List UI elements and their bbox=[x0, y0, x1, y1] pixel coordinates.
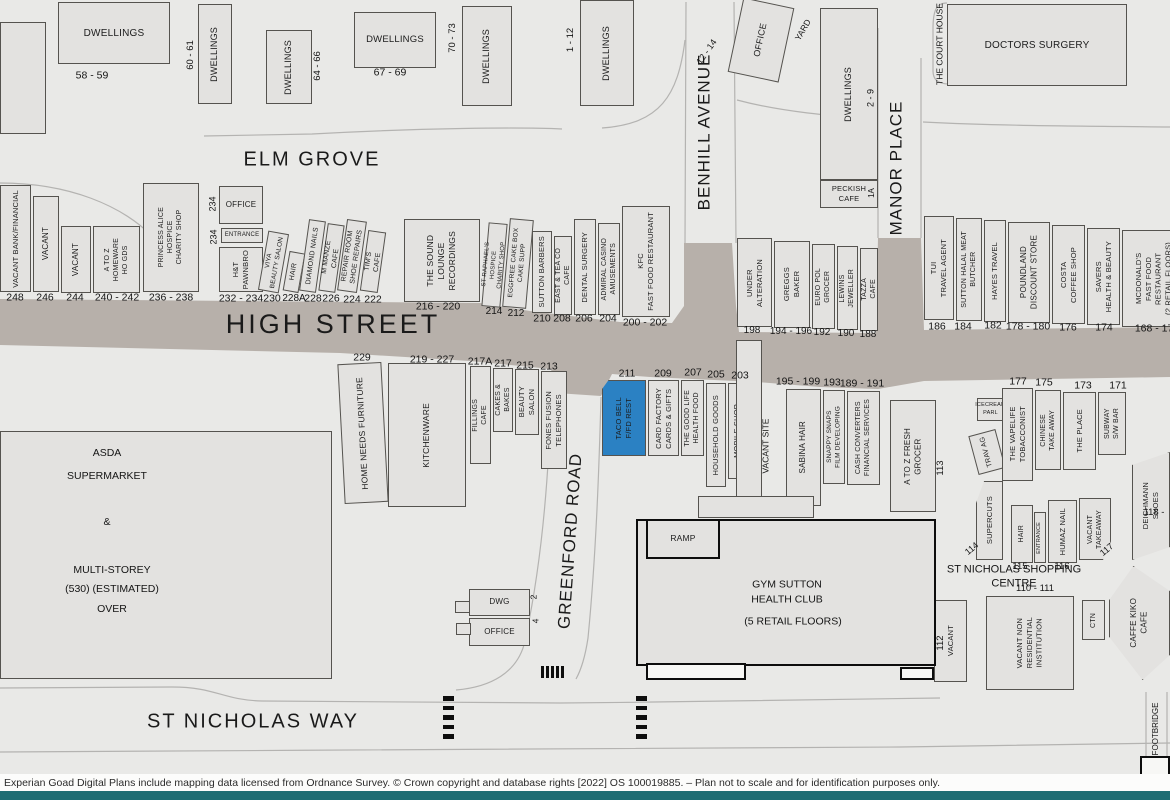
building-tui-186-number: 186 bbox=[928, 320, 946, 333]
building-st-raphaels-214-number: 214 bbox=[486, 306, 503, 319]
building-poundland-178-180-label: POUNDLAND DISCOUNT STORE bbox=[1019, 235, 1040, 309]
building-chinese-takeaway-175[interactable]: CHINESE TAKE AWAY bbox=[1035, 390, 1061, 470]
building-dwg-office[interactable]: OFFICE bbox=[469, 618, 530, 646]
building-tui-186-label: TUI TRAVEL AGENT bbox=[929, 239, 949, 297]
building-hair-228a-label: HAIR bbox=[288, 263, 300, 282]
building-home-needs-229[interactable]: HOME NEEDS FURNITURE bbox=[337, 362, 388, 504]
building-hayes-travel-182-number: 182 bbox=[984, 319, 1002, 332]
building-a-to-z-homeware-240-242-number: 240 - 242 bbox=[95, 291, 139, 304]
building-dwellings-64-66-label: DWELLINGS bbox=[283, 40, 295, 95]
building-h-and-t-pawnbroker-232-234-number: 232 - 234 bbox=[219, 292, 263, 305]
building-dwg-office-number: 4 bbox=[531, 619, 542, 624]
label-asda-top: ASDA SUPERMARKET & bbox=[67, 442, 147, 534]
building-sabina-hair-195-199-number: 195 - 199 bbox=[776, 375, 820, 388]
building-kfc-200-202-label: KFC FAST FOOD RESTAURANT bbox=[636, 212, 656, 311]
label-footbridge: FOOTBRIDGE bbox=[1151, 703, 1161, 756]
building-greggs-194-196-number: 194 - 196 bbox=[770, 326, 812, 339]
building-princess-alice-hospice-236-238-label: PRINCESS ALICE HOSPICE CHARITY SHOP bbox=[157, 207, 184, 267]
building-lewins-190[interactable]: LEWINS JEWELLER bbox=[837, 246, 858, 330]
building-fones-fusion-213[interactable]: FONES FUSION TELEPHONES bbox=[541, 371, 567, 469]
building-ramp-label: RAMP bbox=[670, 533, 695, 544]
label-st-nicholas-shopping-centre: ST NICHOLAS SHOPPING CENTRE bbox=[936, 563, 1092, 591]
building-home-needs-229-label: HOME NEEDS FURNITURE bbox=[355, 376, 372, 489]
building-kitchenware-219-227[interactable]: KITCHENWARE bbox=[388, 363, 466, 507]
building-vacant-246-label: VACANT bbox=[41, 227, 51, 260]
building-dwellings-60-61[interactable]: DWELLINGS bbox=[198, 4, 232, 104]
building-fillings-cafe-217a-number: 217A bbox=[468, 355, 493, 368]
building-card-factory-209-number: 209 bbox=[654, 367, 672, 380]
building-hair-115-label: HAIR bbox=[1017, 525, 1026, 543]
pedestrian-crossing-greenford bbox=[541, 666, 544, 678]
building-chinese-takeaway-175-label: CHINESE TAKE AWAY bbox=[1039, 410, 1057, 451]
building-asda-supermarket[interactable] bbox=[0, 431, 332, 679]
building-cash-converters-189-191-label: CASH CONVERTERS FINANCIAL SERVICES bbox=[854, 399, 872, 476]
building-kfc-200-202-number: 200 - 202 bbox=[623, 316, 667, 329]
building-admiral-casino-204-number: 204 bbox=[599, 312, 617, 325]
building-eggfree-cake-box-212-number: 212 bbox=[508, 308, 525, 321]
building-vacant-non-residential-label: VACANT NON RESIDENTIAL INSTITUTION bbox=[1015, 617, 1044, 668]
building-dwg-number: 2 bbox=[529, 595, 540, 600]
street-label-high-street: HIGH STREET bbox=[226, 308, 441, 342]
building-vacant-non-residential[interactable]: VACANT NON RESIDENTIAL INSTITUTION bbox=[986, 596, 1074, 690]
building-taco-bell-211[interactable]: TACO BELL F/FD REST bbox=[602, 380, 646, 456]
pedestrian-crossing-east bbox=[636, 715, 647, 720]
building-dwellings-58-59[interactable]: DWELLINGS bbox=[58, 2, 170, 64]
building-vacant-244-label: VACANT bbox=[71, 243, 81, 276]
building-tazza-cafe-188-label: TAZZA CAFE bbox=[860, 278, 878, 301]
building-office-234-label: OFFICE bbox=[226, 200, 257, 210]
building-hayes-travel-182-label: HAYES TRAVEL bbox=[990, 242, 1000, 300]
building-humaz-nail-116-label: HUMAZ NAIL bbox=[1058, 508, 1068, 555]
building-dental-surgery-206[interactable]: DENTAL SURGERY bbox=[574, 219, 596, 315]
building-subway-171[interactable]: SUBWAY S/W BAR bbox=[1098, 392, 1126, 455]
building-sutton-barbers-210-number: 210 bbox=[533, 312, 551, 325]
building-cakes-bakes-217[interactable]: CAKES & BAKES bbox=[493, 368, 513, 432]
building-dwellings-67-69-number: 67 - 69 bbox=[374, 66, 407, 79]
building-dwellings-1-12[interactable]: DWELLINGS bbox=[580, 0, 634, 106]
building-the-place-173-label: THE PLACE bbox=[1075, 409, 1085, 452]
building-sutton-halal-184-label: SUTTON HALAL MEAT BUTCHER bbox=[960, 231, 978, 308]
building-dwg[interactable]: DWG bbox=[469, 589, 530, 616]
building-a-to-z-homeware-240-242[interactable]: A TO Z HOMEWARE HO GDS bbox=[93, 226, 140, 293]
building-sutton-halal-184[interactable]: SUTTON HALAL MEAT BUTCHER bbox=[956, 218, 982, 321]
building-mcdonalds-168-172-number: 168 - 172 bbox=[1135, 322, 1170, 335]
building-taco-bell-211-number: 211 bbox=[619, 367, 636, 380]
building-unnamed-bottom-right[interactable] bbox=[1140, 756, 1170, 776]
building-east-tea-co-208[interactable]: EAST & TEA CO CAFE bbox=[554, 236, 572, 315]
building-kitchenware-219-227-label: KITCHENWARE bbox=[421, 403, 432, 468]
building-peckish-cafe-label: PECKISH CAFE bbox=[832, 184, 866, 204]
label-centre-units: 110 - 111 bbox=[1016, 583, 1054, 595]
pedestrian-crossing-west bbox=[443, 715, 454, 720]
building-savers-174-label: SAVERS HEALTH & BEAUTY bbox=[1094, 241, 1114, 312]
building-dwellings-2-9-number: 2 - 9 bbox=[865, 89, 876, 107]
building-princess-alice-hospice-236-238[interactable]: PRINCESS ALICE HOSPICE CHARITY SHOP bbox=[143, 183, 199, 292]
building-dwellings-64-66-number: 64 - 66 bbox=[312, 51, 324, 81]
building-card-factory-209[interactable]: CARD FACTORY CARDS & GIFTS bbox=[648, 380, 679, 456]
street-label-st-nicholas-way: ST NICHOLAS WAY bbox=[147, 710, 359, 735]
building-unnamed-benhill-strip[interactable] bbox=[736, 340, 762, 500]
building-tims-cafe-222-number: 222 bbox=[364, 293, 382, 306]
pedestrian-crossing-greenford bbox=[561, 666, 564, 678]
building-savers-174[interactable]: SAVERS HEALTH & BEAUTY bbox=[1087, 228, 1120, 325]
building-costa-176-label: COSTA COFFEE SHOP bbox=[1059, 247, 1079, 303]
building-dental-surgery-206-label: DENTAL SURGERY bbox=[580, 232, 590, 303]
building-sound-lounge-216-220-label: THE SOUND LOUNGE RECORDINGS bbox=[425, 231, 458, 291]
label-asda-bottom: MULTI-STOREY (530) (ESTIMATED) OVER bbox=[65, 561, 159, 619]
building-greggs-194-196-label: GREGGS BAKER bbox=[782, 267, 802, 301]
building-deichmann-shoes-number: 118 - bbox=[1144, 507, 1165, 519]
building-icecream-parlour[interactable]: ICECREAM PARL bbox=[977, 398, 1004, 421]
building-peckish-cafe-number: 1A bbox=[867, 188, 877, 198]
building-m-manze-cafe-226-number: 226 bbox=[322, 292, 340, 305]
pedestrian-crossing-greenford bbox=[546, 666, 549, 678]
building-dwellings-58-59-number: 58 - 59 bbox=[76, 69, 109, 82]
building-mcdonalds-168-172[interactable]: MCDONALD'S FAST FOOD RESTAURANT (2 RETAI… bbox=[1122, 230, 1170, 327]
building-vapelife-177-label: THE VAPELIFE TOBACCONIST bbox=[1008, 406, 1028, 462]
building-hayes-travel-182[interactable]: HAYES TRAVEL bbox=[984, 220, 1006, 322]
building-chinese-takeaway-175-number: 175 bbox=[1035, 376, 1053, 389]
building-doctors-surgery-label: DOCTORS SURGERY bbox=[985, 39, 1090, 52]
building-sound-lounge-216-220[interactable]: THE SOUND LOUNGE RECORDINGS bbox=[404, 219, 480, 302]
building-dwellings-64-66[interactable]: DWELLINGS bbox=[266, 30, 312, 104]
building-sutton-barbers-210[interactable]: SUTTON BARBERS bbox=[532, 231, 552, 313]
building-vacant-112-number: 112 bbox=[935, 635, 947, 650]
building-sutton-barbers-210-label: SUTTON BARBERS bbox=[537, 236, 547, 307]
building-vacant-bank-248[interactable]: VACANT BANK/FINANCIAL bbox=[0, 185, 31, 292]
building-tims-cafe-222-label: TIM'S CAFE bbox=[363, 251, 384, 273]
building-vacant-112-label: VACANT bbox=[946, 625, 956, 656]
building-admiral-casino-204-label: ADMIRAL CASINO AMUSEMENTS bbox=[600, 238, 618, 300]
building-dwg-office-label: OFFICE bbox=[484, 627, 515, 637]
building-a-to-z-fresh-grocer-113-label: A TO Z FRESH GROCER bbox=[903, 428, 924, 485]
building-a-to-z-homeware-240-242-label: A TO Z HOMEWARE HO GDS bbox=[103, 238, 130, 281]
building-dwellings-58-59-label: DWELLINGS bbox=[84, 27, 145, 40]
building-ctn-label: CTN bbox=[1089, 613, 1098, 628]
building-dwellings-70-73-number: 70 - 73 bbox=[447, 23, 459, 53]
building-kfc-200-202[interactable]: KFC FAST FOOD RESTAURANT bbox=[622, 206, 670, 317]
building-entrance-115[interactable]: ENTRANCE bbox=[1034, 512, 1046, 563]
building-beauty-salon-215-number: 215 bbox=[516, 359, 534, 372]
building-kitchenware-219-227-number: 219 - 227 bbox=[410, 353, 454, 366]
building-poundland-178-180[interactable]: POUNDLAND DISCOUNT STORE bbox=[1008, 222, 1050, 323]
building-euro-pol-192-number: 192 bbox=[814, 327, 831, 340]
building-dwellings-67-69-label: DWELLINGS bbox=[366, 34, 424, 46]
label-gym-name: GYM SUTTON HEALTH CLUB bbox=[751, 577, 823, 606]
building-eggfree-cake-box-212-label: EGGFREE CAKE BOX CAKE SUPP bbox=[507, 228, 530, 299]
building-household-goods-205-label: HOUSEHOLD GOODS bbox=[711, 395, 721, 476]
building-savers-174-number: 174 bbox=[1095, 321, 1113, 334]
building-beauty-salon-215-label: BEAUTY SALON bbox=[517, 386, 537, 417]
street-label-elm-grove: ELM GROVE bbox=[244, 148, 381, 173]
building-dwellings-70-73[interactable]: DWELLINGS bbox=[462, 6, 512, 106]
building-princess-alice-hospice-236-238-number: 236 - 238 bbox=[149, 291, 193, 304]
building-unnamed-northwest[interactable] bbox=[0, 22, 46, 134]
building-good-life-207[interactable]: THE GOOD LIFE HEALTH FOOD bbox=[681, 380, 704, 456]
building-taco-bell-211-label: TACO BELL F/FD REST bbox=[614, 397, 634, 440]
building-viya-beauty-salon-230-number: 230 bbox=[263, 292, 281, 305]
building-supercuts-114-label: SUPERCUTS bbox=[985, 496, 995, 544]
pedestrian-crossing-east bbox=[636, 725, 647, 730]
building-costa-176[interactable]: COSTA COFFEE SHOP bbox=[1052, 225, 1085, 324]
building-office-12-14-label: OFFICE bbox=[752, 22, 771, 58]
building-under-alteration-198[interactable]: UNDER ALTERATION bbox=[737, 238, 772, 327]
pedestrian-crossing-west bbox=[443, 696, 454, 701]
building-costa-176-number: 176 bbox=[1059, 321, 1077, 334]
map-canvas[interactable]: Experian Goad Digital Plans include mapp… bbox=[0, 0, 1170, 800]
building-diamond-nails-228-number: 228 bbox=[304, 292, 322, 305]
attribution-bar: Experian Goad Digital Plans include mapp… bbox=[0, 774, 1170, 792]
building-cakes-bakes-217-number: 217 bbox=[494, 357, 512, 370]
building-fones-fusion-213-number: 213 bbox=[540, 360, 558, 373]
building-beauty-salon-215[interactable]: BEAUTY SALON bbox=[515, 369, 539, 435]
building-vapelife-177[interactable]: THE VAPELIFE TOBACCONIST bbox=[1002, 388, 1033, 481]
building-lewins-190-number: 190 bbox=[838, 328, 855, 341]
building-doctors-surgery[interactable]: DOCTORS SURGERY bbox=[947, 4, 1127, 86]
building-unnamed-gym-south-a[interactable] bbox=[646, 663, 746, 680]
building-hair-115[interactable]: HAIR bbox=[1011, 505, 1033, 563]
building-unnamed-row-above-gym[interactable] bbox=[698, 496, 814, 518]
building-cash-converters-189-191-number: 189 - 191 bbox=[840, 377, 884, 390]
building-repair-room-224-number: 224 bbox=[343, 293, 361, 306]
building-mobile-shop-203-number: 203 bbox=[731, 369, 749, 382]
building-office-234[interactable]: OFFICE bbox=[219, 186, 263, 224]
building-cash-converters-189-191[interactable]: CASH CONVERTERS FINANCIAL SERVICES bbox=[847, 391, 880, 485]
building-ctn[interactable]: CTN bbox=[1082, 600, 1105, 640]
building-h-and-t-pawnbroker-232-234[interactable]: H&T PAWNBRO bbox=[219, 247, 263, 292]
building-snappy-snaps-193-number: 193 bbox=[823, 376, 841, 389]
pedestrian-crossing-east bbox=[636, 734, 647, 739]
building-unnamed-dwg-wing-a[interactable] bbox=[455, 601, 470, 613]
building-subway-171-label: SUBWAY S/W BAR bbox=[1103, 408, 1121, 439]
building-tazza-cafe-188[interactable]: TAZZA CAFE bbox=[860, 248, 878, 331]
building-entrance-115-label: ENTRANCE bbox=[1036, 522, 1043, 554]
building-snappy-snaps-193-label: SNAPPY SNAPS FILM DEVELOPING bbox=[826, 406, 843, 468]
building-lewins-190-label: LEWINS JEWELLER bbox=[838, 269, 856, 308]
building-entrance-234[interactable]: ENTRANCE bbox=[221, 228, 263, 243]
building-ramp[interactable]: RAMP bbox=[646, 519, 720, 559]
building-entrance-234-label: ENTRANCE bbox=[225, 232, 260, 240]
building-fones-fusion-213-label: FONES FUSION TELEPHONES bbox=[544, 391, 564, 450]
building-fillings-cafe-217a[interactable]: FILLINGS CAFE bbox=[470, 366, 491, 464]
building-good-life-207-label: THE GOOD LIFE HEALTH FOOD bbox=[683, 390, 701, 447]
building-vacant-bank-248-label: VACANT BANK/FINANCIAL bbox=[11, 190, 21, 288]
building-dwellings-2-9-label: DWELLINGS bbox=[843, 67, 855, 122]
building-deichmann-shoes-label: DEICHMANN SHOES bbox=[1141, 482, 1161, 529]
building-household-goods-205[interactable]: HOUSEHOLD GOODS bbox=[706, 383, 726, 487]
building-dwellings-1-12-label: DWELLINGS bbox=[601, 26, 613, 81]
building-caffe-kiko-label: CAFFE KIKO CAFE bbox=[1129, 598, 1150, 648]
building-euro-pol-192-label: EURO POL GROCER bbox=[814, 268, 832, 306]
building-under-alteration-198-number: 198 bbox=[744, 325, 761, 338]
building-sutton-halal-184-number: 184 bbox=[954, 320, 972, 333]
building-vacant-244-number: 244 bbox=[66, 291, 84, 304]
building-dwellings-67-69[interactable]: DWELLINGS bbox=[354, 12, 436, 68]
building-vacant-246-number: 246 bbox=[36, 291, 54, 304]
building-east-tea-co-208-number: 208 bbox=[553, 312, 571, 325]
building-snappy-snaps-193[interactable]: SNAPPY SNAPS FILM DEVELOPING bbox=[823, 390, 845, 484]
building-humaz-nail-116[interactable]: HUMAZ NAIL bbox=[1048, 500, 1077, 563]
label-vacant-site: VACANT SITE bbox=[761, 419, 772, 474]
building-home-needs-229-number: 229 bbox=[353, 351, 371, 364]
label-gym-floors: (5 RETAIL FLOORS) bbox=[744, 615, 841, 628]
building-tazza-cafe-188-number: 188 bbox=[860, 329, 877, 342]
attribution-text: Experian Goad Digital Plans include mapp… bbox=[4, 777, 940, 789]
building-vacant-246[interactable]: VACANT bbox=[33, 196, 59, 292]
label-the-court-house: THE COURT HOUSE bbox=[935, 3, 946, 85]
building-cakes-bakes-217-label: CAKES & BAKES bbox=[494, 384, 512, 416]
building-hair-228a-number: 228A bbox=[282, 293, 305, 306]
building-dwellings-70-73-label: DWELLINGS bbox=[481, 29, 493, 84]
building-card-factory-209-label: CARD FACTORY CARDS & GIFTS bbox=[654, 388, 674, 449]
building-h-and-t-pawnbroker-232-234-label: H&T PAWNBRO bbox=[231, 250, 251, 289]
building-tui-186[interactable]: TUI TRAVEL AGENT bbox=[924, 216, 954, 320]
pedestrian-crossing-greenford bbox=[551, 666, 554, 678]
building-dwg-label: DWG bbox=[489, 597, 509, 607]
building-euro-pol-192[interactable]: EURO POL GROCER bbox=[812, 244, 835, 329]
building-under-alteration-198-label: UNDER ALTERATION bbox=[745, 259, 765, 307]
building-the-place-173-number: 173 bbox=[1074, 379, 1092, 392]
building-vapelife-177-number: 177 bbox=[1009, 375, 1027, 388]
pedestrian-crossing-greenford bbox=[556, 666, 559, 678]
building-a-to-z-fresh-grocer-113-number: 113 bbox=[935, 460, 947, 475]
building-vacant-244[interactable]: VACANT bbox=[61, 226, 91, 293]
building-trav-ag-label: TRAV AG bbox=[979, 436, 996, 469]
building-sabina-hair-195-199-label: SABINA HAIR bbox=[798, 421, 808, 473]
building-dwellings-1-12-number: 1 - 12 bbox=[565, 28, 577, 52]
building-entrance-234-number: 234 bbox=[208, 229, 219, 244]
pedestrian-crossing-east bbox=[636, 696, 647, 701]
bottom-accent-bar bbox=[0, 791, 1170, 800]
building-deichmann-shoes[interactable]: DEICHMANN SHOES bbox=[1132, 452, 1170, 560]
building-poundland-178-180-number: 178 - 180 bbox=[1006, 320, 1050, 333]
building-greggs-194-196[interactable]: GREGGS BAKER bbox=[774, 241, 810, 328]
building-dwellings-60-61-number: 60 - 61 bbox=[185, 40, 197, 70]
building-vacant-takeaway-117-label: VACANT TAKEAWAY bbox=[1086, 510, 1104, 549]
pedestrian-crossing-west bbox=[443, 725, 454, 730]
street-label-manor-place: MANOR PLACE bbox=[885, 101, 906, 236]
building-dwellings-60-61-label: DWELLINGS bbox=[209, 27, 221, 82]
building-sabina-hair-195-199[interactable]: SABINA HAIR bbox=[786, 389, 821, 506]
building-household-goods-205-number: 205 bbox=[707, 368, 725, 381]
building-unnamed-dwg-wing-b[interactable] bbox=[456, 623, 471, 635]
building-unnamed-gym-south-b[interactable] bbox=[900, 667, 934, 680]
street-label-benhill-avenue: BENHILL AVENUE bbox=[693, 54, 714, 211]
building-east-tea-co-208-label: EAST & TEA CO CAFE bbox=[554, 248, 572, 303]
building-office-234-number: 234 bbox=[207, 196, 218, 211]
pedestrian-crossing-west bbox=[443, 734, 454, 739]
building-subway-171-number: 171 bbox=[1109, 379, 1127, 392]
building-fillings-cafe-217a-label: FILLINGS CAFE bbox=[471, 399, 489, 432]
building-the-place-173[interactable]: THE PLACE bbox=[1063, 392, 1096, 470]
building-admiral-casino-204[interactable]: ADMIRAL CASINO AMUSEMENTS bbox=[598, 223, 620, 315]
pedestrian-crossing-east bbox=[636, 706, 647, 711]
pedestrian-crossing-west bbox=[443, 706, 454, 711]
building-dental-surgery-206-number: 206 bbox=[575, 312, 593, 325]
building-good-life-207-number: 207 bbox=[684, 366, 702, 379]
building-mcdonalds-168-172-label: MCDONALD'S FAST FOOD RESTAURANT (2 RETAI… bbox=[1134, 231, 1170, 326]
building-vacant-bank-248-number: 248 bbox=[6, 291, 24, 304]
building-a-to-z-fresh-grocer-113[interactable]: A TO Z FRESH GROCER bbox=[890, 400, 936, 512]
